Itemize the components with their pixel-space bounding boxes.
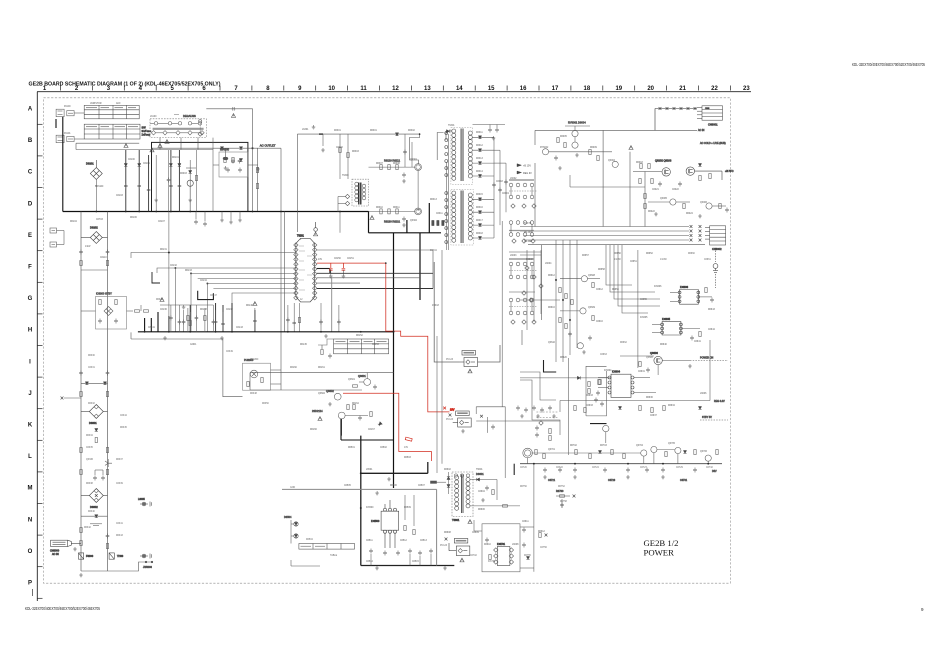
svg-text:1/10W: 1/10W [660, 259, 667, 261]
svg-text:Q6701: Q6701 [548, 449, 556, 451]
svg-text:IC6701: IC6701 [497, 543, 506, 546]
svg-text:C6101: C6101 [143, 163, 150, 165]
svg-text:C6720: C6720 [520, 467, 527, 469]
svg-text:C6513: C6513 [420, 540, 427, 542]
svg-text:O: O [28, 549, 33, 555]
svg-text:L6608: L6608 [512, 544, 519, 546]
svg-text:C6515: C6515 [412, 561, 419, 563]
svg-text:+B 15V: +B 15V [523, 165, 531, 168]
svg-text:R6346: R6346 [156, 299, 163, 301]
svg-text:C6502: C6502 [380, 447, 387, 449]
svg-text:C6318: C6318 [496, 181, 503, 183]
svg-text:+B PFC: +B PFC [725, 170, 734, 173]
svg-text:JW6003: JW6003 [143, 566, 152, 569]
svg-text:R6506: R6506 [390, 485, 397, 487]
svg-text:R6654: R6654 [612, 289, 619, 291]
svg-text:D6340: D6340 [88, 511, 95, 513]
svg-text:C6756: C6756 [540, 547, 547, 549]
svg-text:C6347: C6347 [210, 295, 217, 297]
svg-text:R6758: R6758 [560, 501, 567, 503]
svg-text:T6300: T6300 [342, 175, 349, 177]
svg-text:C6641: C6641 [694, 341, 701, 343]
svg-text:IC6500: IC6500 [371, 519, 380, 523]
svg-text:R6608: R6608 [444, 532, 451, 534]
svg-text:C6609: C6609 [472, 532, 479, 534]
svg-text:PC123: PC123 [446, 359, 454, 361]
svg-text:AC OUTLET: AC OUTLET [260, 144, 276, 148]
svg-text:D6311: D6311 [476, 132, 483, 134]
svg-text:D6601: D6601 [476, 472, 484, 476]
svg-text:POWER: POWER [644, 548, 675, 558]
svg-text:PS-ON: PS-ON [524, 232, 532, 234]
svg-text:C6633: C6633 [586, 405, 593, 407]
svg-text:R6643: R6643 [708, 309, 715, 311]
svg-text:REG 3.3V: REG 3.3V [714, 400, 725, 403]
svg-text:G: G [28, 296, 33, 302]
svg-text:TH60: TH60 [117, 555, 124, 558]
svg-text:20: 20 [647, 86, 654, 92]
svg-text:R6345: R6345 [120, 427, 127, 429]
svg-text:Q6301: Q6301 [410, 159, 418, 161]
svg-text:C6331: C6331 [88, 367, 95, 369]
svg-text:C6349: C6349 [226, 351, 233, 353]
svg-text:D6504: D6504 [284, 516, 292, 519]
svg-text:P: P [28, 581, 32, 587]
svg-text:C6153: C6153 [372, 344, 379, 346]
svg-text:C6721: C6721 [548, 479, 556, 482]
svg-text:C6335: C6335 [86, 447, 93, 449]
svg-text:13: 13 [424, 86, 431, 92]
svg-text:R6338: R6338 [86, 483, 93, 485]
svg-text:D6332: D6332 [88, 403, 95, 405]
svg-text:15: 15 [488, 86, 495, 92]
svg-text:C6726: C6726 [608, 479, 616, 482]
svg-text:22: 22 [711, 86, 718, 92]
svg-text:D5V: D5V [712, 470, 717, 473]
svg-text:R6342: R6342 [84, 527, 91, 529]
svg-text:F: F [28, 265, 32, 271]
svg-text:KDL-32EX700/40EX700/46EX700/52: KDL-32EX700/40EX700/46EX700/52EX700/46EX… [25, 606, 100, 611]
svg-text:R6330: R6330 [88, 355, 95, 357]
svg-text:R6138: R6138 [200, 309, 207, 311]
svg-text:F6101: F6101 [64, 133, 71, 135]
svg-text:R6750: R6750 [520, 486, 527, 488]
svg-text:T6101: T6101 [297, 235, 304, 238]
svg-text:D6703: D6703 [600, 445, 607, 447]
svg-text:IC6604: IC6604 [612, 371, 621, 374]
svg-text:D6102: D6102 [90, 226, 98, 230]
svg-text:F6000: F6000 [86, 555, 94, 558]
svg-text:C6341: C6341 [116, 523, 123, 525]
svg-text:D6302: D6302 [408, 130, 415, 132]
svg-text:D6755: D6755 [524, 555, 531, 557]
svg-text:R6106: R6106 [130, 217, 137, 219]
svg-text:C6651: C6651 [630, 261, 637, 263]
svg-text:PH6300: PH6300 [250, 359, 259, 361]
svg-text:R6348: R6348 [250, 393, 257, 395]
svg-text:R6501: R6501 [348, 447, 355, 449]
svg-text:1/10W: 1/10W [614, 259, 621, 261]
svg-text:C6507: C6507 [418, 485, 425, 487]
svg-text:R6303: R6303 [352, 151, 359, 153]
svg-text:R6308: R6308 [393, 163, 400, 165]
svg-text:C6512: C6512 [400, 540, 407, 542]
svg-text:PC123: PC123 [446, 419, 454, 421]
svg-text:D6301: D6301 [334, 130, 341, 132]
svg-text:Q6704: Q6704 [636, 445, 644, 447]
svg-text:C6612: C6612 [596, 289, 603, 291]
svg-text:17: 17 [552, 86, 559, 92]
svg-text:R6650: R6650 [614, 253, 621, 255]
svg-text:T6601: T6601 [476, 469, 483, 471]
svg-text:R6343: R6343 [116, 535, 123, 537]
svg-text:R6104: R6104 [70, 221, 77, 223]
svg-text:IC6606: IC6606 [680, 286, 689, 289]
svg-text:IC6604: IC6604 [604, 370, 612, 372]
svg-text:C6100: C6100 [128, 159, 135, 161]
svg-text:R6022: R6022 [648, 211, 655, 213]
svg-text:GND: GND [290, 487, 295, 489]
svg-text:R6702: R6702 [570, 445, 577, 447]
svg-text:C6339: C6339 [116, 483, 123, 485]
svg-text:C6631: C6631 [638, 371, 645, 373]
svg-text:KDL-32EX700/40EX700/46EX700/52: KDL-32EX700/40EX700/46EX700/52EX700/46EX… [852, 62, 925, 67]
svg-text:D6003: D6003 [180, 173, 187, 175]
svg-text:R6620: R6620 [560, 357, 567, 359]
svg-text:C6021: C6021 [652, 189, 659, 191]
svg-text:1/2W: 1/2W [85, 246, 91, 248]
svg-text:IC6701: IC6701 [488, 561, 496, 563]
svg-text:L6501: L6501 [366, 469, 373, 471]
svg-text:AC IN: AC IN [52, 553, 59, 556]
svg-text:C6141: C6141 [148, 327, 155, 329]
svg-text:D6657: D6657 [582, 255, 589, 257]
svg-text:R6301: R6301 [370, 130, 377, 132]
svg-text:D6801: D6801 [89, 421, 97, 425]
svg-text:IC6605: IC6605 [640, 317, 648, 319]
svg-text:C: C [28, 170, 33, 176]
svg-text:R6133: R6133 [185, 270, 192, 272]
svg-text:D6101: D6101 [86, 162, 94, 166]
svg-text:C6151: C6151 [347, 258, 354, 260]
svg-text:R6161: R6161 [318, 367, 325, 369]
svg-text:C6143: C6143 [236, 327, 243, 329]
svg-text:R6024: R6024 [686, 213, 693, 215]
svg-text:D6802: D6802 [90, 505, 98, 509]
svg-text:R6334: R6334 [86, 435, 93, 437]
svg-text:C6732: C6732 [706, 467, 713, 469]
svg-text:D6160: D6160 [290, 367, 297, 369]
svg-text:13V: 13V [318, 259, 323, 261]
svg-text:IC6500: IC6500 [366, 507, 374, 509]
svg-text:R6164: R6164 [352, 403, 359, 405]
svg-text:Q6606: Q6606 [650, 351, 658, 355]
svg-text:BR6100: BR6100 [95, 186, 104, 188]
svg-text:L6301: L6301 [302, 129, 309, 131]
svg-text:R6350: R6350 [262, 403, 269, 405]
svg-text:AC IN: AC IN [698, 129, 705, 132]
svg-text:Q6706: Q6706 [700, 451, 708, 453]
svg-text:Q6602: Q6602 [318, 393, 326, 395]
svg-text:Q6608: Q6608 [588, 275, 596, 277]
svg-text:R6145: R6145 [300, 344, 307, 346]
svg-text:CN6001: CN6001 [708, 123, 718, 127]
svg-text:Q6601: Q6601 [358, 374, 366, 378]
svg-text:R6313: R6313 [430, 199, 437, 201]
svg-text:C6611: C6611 [522, 521, 529, 523]
svg-text:R6009: R6009 [590, 147, 597, 149]
svg-text:CN6002: CN6002 [712, 247, 722, 251]
svg-text:IC6605: IC6605 [662, 318, 671, 321]
svg-text:R6752: R6752 [558, 486, 565, 488]
svg-text:R6616: R6616 [548, 307, 555, 309]
svg-text:C6731: C6731 [680, 479, 688, 482]
svg-text:R6311: R6311 [393, 207, 400, 209]
svg-text:PC123: PC123 [440, 545, 448, 547]
svg-text:C6167: C6167 [368, 429, 375, 431]
svg-text:D: D [28, 201, 33, 207]
svg-text:21: 21 [679, 86, 686, 92]
svg-text:C6107: C6107 [158, 221, 165, 223]
svg-text:Q6302: Q6302 [410, 220, 418, 222]
svg-text:M: M [28, 486, 33, 492]
svg-text:R6152: R6152 [356, 335, 363, 337]
svg-text:L6100: L6100 [150, 116, 157, 118]
svg-text:Q6005: Q6005 [660, 198, 668, 200]
svg-text:10: 10 [328, 86, 335, 92]
svg-text:R6220 R6221: R6220 R6221 [384, 159, 401, 163]
svg-text:D6313: D6313 [476, 158, 483, 160]
svg-text:R6652: R6652 [646, 253, 653, 255]
svg-text:D6314: D6314 [476, 171, 483, 173]
svg-text:C6134: C6134 [200, 280, 207, 282]
svg-text:B: B [28, 138, 33, 144]
svg-text:RY6002: RY6002 [540, 147, 549, 149]
svg-text:Q6102 Q6103: Q6102 Q6103 [655, 159, 672, 163]
svg-text:D6318: D6318 [476, 233, 483, 235]
svg-text:L6606: L6606 [700, 393, 707, 395]
svg-text:C6661: C6661 [704, 259, 711, 261]
svg-text:C6505: C6505 [344, 485, 351, 487]
svg-text:D6317: D6317 [476, 220, 483, 222]
svg-text:POWER ON: POWER ON [700, 357, 714, 360]
svg-text:C6511: C6511 [366, 540, 373, 542]
svg-text:D6312: D6312 [476, 145, 483, 147]
svg-text:GND1: GND1 [190, 344, 197, 346]
svg-text:C6727: C6727 [640, 467, 647, 469]
svg-text:R6636: R6636 [646, 397, 653, 399]
svg-text:R6101: R6101 [172, 157, 179, 159]
svg-text:R6612: R6612 [548, 275, 555, 277]
svg-text:VARISTOR: VARISTOR [90, 102, 102, 105]
svg-text:C6703: C6703 [96, 219, 103, 221]
svg-text:C6724: C6724 [592, 467, 599, 469]
svg-text:D6316: D6316 [476, 207, 483, 209]
svg-text:R6509: R6509 [404, 507, 411, 509]
svg-text:C6022: C6022 [672, 189, 679, 191]
svg-text:C6150: C6150 [334, 258, 341, 260]
svg-text:13V: 13V [450, 409, 455, 412]
svg-text:R6633: R6633 [586, 395, 593, 397]
svg-text:N: N [28, 517, 32, 523]
svg-text:16: 16 [520, 86, 527, 92]
svg-text:11: 11 [360, 86, 367, 92]
svg-text:ACF: ACF [116, 102, 121, 105]
svg-text:RY6001 D6004: RY6001 D6004 [568, 121, 586, 125]
svg-text:L6602: L6602 [510, 178, 517, 180]
svg-text:R6790: R6790 [556, 490, 564, 493]
svg-text:REG 9V: REG 9V [523, 172, 532, 175]
svg-text:C6302: C6302 [336, 147, 343, 149]
svg-text:C6311: C6311 [436, 213, 443, 215]
svg-text:5VSTB: 5VSTB [524, 223, 532, 225]
svg-text:C6344: C6344 [120, 415, 127, 417]
svg-text:2xRccp: 2xRccp [142, 133, 151, 137]
svg-text:IC6606: IC6606 [654, 286, 662, 288]
svg-text:C6604: C6604 [478, 491, 485, 493]
svg-text:IC6300 STBY: IC6300 STBY [96, 292, 112, 296]
svg-text:SW: SW [142, 126, 147, 130]
svg-text:DEGAUSS: DEGAUSS [183, 114, 196, 118]
svg-text:STBY 5V: STBY 5V [702, 416, 712, 419]
svg-text:Q6610: Q6610 [548, 342, 556, 344]
svg-text:12: 12 [392, 86, 399, 92]
svg-text:RY6000: RY6000 [220, 149, 230, 152]
svg-text:K: K [28, 423, 33, 429]
svg-text:R6018: R6018 [636, 162, 643, 164]
svg-text:T6301: T6301 [448, 125, 455, 127]
svg-text:C6644: C6644 [708, 329, 715, 331]
svg-text:L: L [28, 454, 32, 460]
svg-text:D6503: D6503 [404, 457, 411, 459]
svg-text:R6166: R6166 [310, 429, 317, 431]
svg-text:GE2B 1/2: GE2B 1/2 [644, 538, 679, 548]
svg-text:4N60Z: 4N60Z [432, 305, 439, 307]
svg-text:18: 18 [584, 86, 591, 92]
svg-text:H: H [28, 328, 32, 334]
svg-text:R6660: R6660 [688, 253, 695, 255]
svg-text:R6662: R6662 [620, 342, 627, 344]
svg-text:R6640: R6640 [660, 344, 667, 346]
svg-text:C6616: C6616 [596, 321, 603, 323]
svg-text:R6606: R6606 [478, 509, 485, 511]
svg-text:D6315: D6315 [476, 194, 483, 196]
svg-text:13V: 13V [404, 447, 409, 449]
svg-text:AC-DET: AC-DET [524, 240, 533, 243]
svg-text:C6136: C6136 [160, 309, 167, 311]
svg-text:L6603: L6603 [510, 255, 517, 257]
svg-text:R6131: R6131 [160, 249, 167, 251]
svg-text:C6702: C6702 [470, 555, 477, 557]
svg-text:C6655: C6655 [640, 299, 647, 301]
svg-text:L6005: L6005 [138, 498, 145, 501]
svg-text:Q6602: Q6602 [326, 389, 334, 393]
svg-text:Q6609: Q6609 [588, 307, 596, 309]
svg-text:Q6006: Q6006 [700, 202, 708, 204]
svg-text:19: 19 [615, 86, 622, 92]
svg-text:2SD2114: 2SD2114 [312, 409, 323, 413]
svg-text:D6504: D6504 [306, 539, 313, 541]
svg-text:Q6004: Q6004 [608, 160, 616, 162]
svg-text:D6005: D6005 [560, 136, 567, 138]
svg-text:14: 14 [456, 86, 463, 92]
svg-text:R6307: R6307 [376, 163, 383, 165]
svg-text:D6704: D6704 [430, 250, 437, 252]
svg-text:F6100: F6100 [64, 106, 71, 108]
svg-text:AC COLD + LIVE (SUB): AC COLD + LIVE (SUB) [700, 142, 726, 145]
svg-text:23: 23 [743, 86, 750, 92]
svg-text:C6514: C6514 [366, 561, 373, 563]
svg-text:R6337: R6337 [116, 459, 123, 461]
svg-text:C6319: C6319 [502, 193, 509, 195]
svg-text:Q6606: Q6606 [646, 357, 654, 359]
svg-text:R6310: R6310 [376, 207, 383, 209]
svg-text:D6602: D6602 [444, 469, 451, 471]
svg-text:D6610: D6610 [484, 544, 491, 546]
svg-text:C6722: C6722 [556, 467, 563, 469]
svg-text:R6658: R6658 [598, 269, 605, 271]
svg-text:C6637: C6637 [650, 415, 657, 417]
svg-text:C6103: C6103 [116, 195, 123, 197]
svg-text:L6604: L6604 [545, 263, 552, 265]
svg-text:R6140: R6140 [246, 305, 253, 307]
svg-text:D6608: D6608 [526, 259, 533, 261]
svg-text:C6729: C6729 [676, 467, 683, 469]
svg-text:R6612: R6612 [538, 531, 545, 533]
svg-text:C6132: C6132 [170, 265, 177, 267]
svg-text:Q6336: Q6336 [86, 459, 94, 461]
svg-text:D6634: D6634 [668, 405, 675, 407]
svg-text:J: J [28, 391, 31, 397]
svg-text:C6110: C6110 [100, 257, 107, 259]
svg-text:TABLE: TABLE [330, 554, 338, 557]
svg-text:E: E [28, 233, 32, 239]
svg-text:Q6601: Q6601 [348, 379, 356, 381]
svg-text:Q6705: Q6705 [668, 443, 676, 445]
svg-text:C6139: C6139 [226, 309, 233, 311]
svg-text:CN6: CN6 [705, 108, 710, 110]
svg-text:T6601: T6601 [452, 518, 460, 522]
svg-text:A: A [28, 107, 33, 113]
svg-text:R6230 R6231: R6230 R6231 [384, 220, 401, 224]
svg-text:C6663: C6663 [600, 354, 607, 356]
